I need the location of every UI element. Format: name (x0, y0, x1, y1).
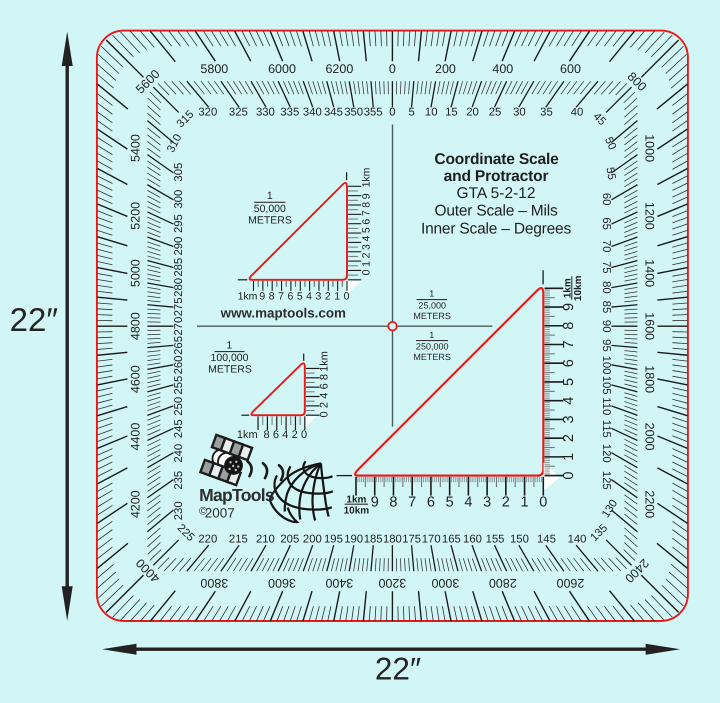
svg-text:100,000: 100,000 (211, 352, 249, 364)
svg-text:160: 160 (463, 534, 482, 546)
svg-text:205: 205 (280, 534, 299, 546)
svg-text:4400: 4400 (128, 423, 142, 451)
svg-text:155: 155 (486, 534, 505, 546)
svg-text:90: 90 (600, 320, 612, 333)
svg-text:7: 7 (360, 210, 372, 216)
svg-text:2800: 2800 (489, 576, 517, 590)
svg-text:5000: 5000 (128, 259, 142, 287)
svg-text:7: 7 (278, 290, 284, 302)
svg-text:95: 95 (600, 339, 612, 352)
svg-text:4: 4 (319, 393, 331, 399)
svg-text:1800: 1800 (642, 365, 656, 393)
svg-text:215: 215 (229, 534, 248, 546)
svg-text:150: 150 (510, 534, 529, 546)
svg-text:6: 6 (273, 429, 279, 441)
svg-text:3: 3 (483, 495, 491, 511)
svg-text:10: 10 (425, 107, 438, 119)
svg-text:245: 245 (173, 419, 185, 438)
svg-text:and Protractor: and Protractor (444, 168, 549, 185)
svg-text:260: 260 (173, 356, 185, 375)
svg-text:45: 45 (591, 111, 608, 128)
svg-text:3600: 3600 (268, 576, 296, 590)
svg-text:125: 125 (600, 471, 612, 490)
svg-text:4: 4 (282, 429, 288, 441)
svg-text:8: 8 (360, 202, 372, 208)
svg-text:60: 60 (600, 193, 612, 206)
svg-text:5400: 5400 (128, 134, 142, 162)
svg-text:9: 9 (371, 495, 379, 511)
svg-text:25: 25 (489, 107, 502, 119)
svg-text:1: 1 (267, 190, 273, 202)
svg-text:50: 50 (602, 135, 618, 151)
svg-text:6: 6 (427, 495, 435, 511)
svg-text:8: 8 (389, 495, 397, 511)
svg-text:335: 335 (280, 107, 299, 119)
svg-text:65: 65 (600, 217, 612, 230)
svg-text:3: 3 (561, 415, 577, 423)
svg-text:22″: 22″ (10, 301, 59, 338)
svg-text:190: 190 (344, 534, 363, 546)
svg-text:7: 7 (561, 340, 577, 348)
svg-text:1: 1 (429, 289, 434, 299)
svg-text:2: 2 (325, 290, 331, 302)
svg-text:275: 275 (173, 298, 185, 317)
svg-text:3: 3 (360, 244, 372, 250)
svg-text:220: 220 (198, 534, 217, 546)
svg-text:3400: 3400 (325, 576, 353, 590)
svg-text:175: 175 (402, 534, 421, 546)
svg-text:180: 180 (383, 534, 402, 546)
svg-text:1400: 1400 (642, 259, 656, 287)
svg-text:105: 105 (600, 376, 612, 395)
svg-text:305: 305 (173, 163, 185, 182)
svg-text:345: 345 (324, 107, 343, 119)
svg-text:280: 280 (173, 278, 185, 297)
svg-text:3: 3 (316, 290, 322, 302)
svg-text:600: 600 (560, 62, 581, 76)
svg-text:70: 70 (600, 240, 612, 253)
svg-text:110: 110 (600, 397, 612, 415)
svg-text:2200: 2200 (642, 490, 656, 518)
svg-text:265: 265 (173, 336, 185, 355)
svg-text:2: 2 (502, 495, 510, 511)
svg-text:2600: 2600 (557, 576, 585, 590)
svg-text:115: 115 (600, 420, 612, 438)
svg-text:235: 235 (173, 471, 185, 490)
svg-text:290: 290 (173, 237, 185, 256)
svg-text:1: 1 (334, 290, 340, 302)
svg-text:320: 320 (198, 107, 217, 119)
svg-text:9: 9 (360, 193, 372, 199)
svg-text:50,000: 50,000 (254, 203, 286, 215)
svg-text:350: 350 (344, 107, 363, 119)
svg-text:8: 8 (264, 429, 270, 441)
svg-text:0: 0 (319, 411, 331, 417)
svg-text:310: 310 (165, 132, 184, 154)
svg-text:250,000: 250,000 (416, 342, 449, 352)
svg-text:GTA 5-2-12: GTA 5-2-12 (457, 185, 536, 202)
svg-text:5200: 5200 (128, 202, 142, 230)
svg-text:1200: 1200 (642, 202, 656, 230)
svg-text:25,000: 25,000 (418, 301, 446, 311)
svg-text:270: 270 (173, 317, 185, 336)
svg-text:250: 250 (173, 397, 185, 416)
svg-text:1: 1 (561, 453, 577, 461)
svg-text:295: 295 (173, 214, 185, 233)
svg-text:1km: 1km (237, 429, 258, 441)
svg-text:1km: 1km (319, 351, 331, 372)
svg-text:1: 1 (521, 495, 529, 511)
svg-text:4: 4 (306, 290, 312, 302)
svg-text:300: 300 (173, 190, 185, 209)
svg-text:2000: 2000 (642, 423, 656, 451)
svg-text:2: 2 (319, 402, 331, 408)
svg-text:165: 165 (442, 534, 461, 546)
svg-text:0: 0 (561, 472, 577, 480)
svg-text:355: 355 (364, 107, 383, 119)
svg-text:8: 8 (269, 290, 275, 302)
svg-text:2: 2 (360, 252, 372, 258)
svg-text:8: 8 (319, 374, 331, 380)
svg-text:1000: 1000 (642, 134, 656, 162)
svg-text:325: 325 (229, 107, 248, 119)
svg-text:20: 20 (466, 107, 479, 119)
svg-text:6: 6 (360, 219, 372, 225)
svg-text:8: 8 (561, 322, 577, 330)
svg-text:5: 5 (446, 495, 454, 511)
svg-text:6: 6 (561, 359, 577, 367)
svg-text:1km: 1km (360, 167, 372, 187)
svg-text:0: 0 (389, 107, 395, 119)
svg-text:185: 185 (364, 534, 383, 546)
svg-text:0: 0 (539, 495, 547, 511)
svg-text:285: 285 (173, 258, 185, 277)
svg-text:3200: 3200 (378, 576, 406, 590)
svg-text:5: 5 (360, 227, 372, 233)
svg-text:210: 210 (256, 534, 275, 546)
svg-text:9: 9 (561, 303, 577, 311)
svg-text:METERS: METERS (413, 311, 451, 321)
svg-text:10km: 10km (573, 275, 584, 301)
svg-text:255: 255 (173, 376, 185, 395)
svg-text:5800: 5800 (200, 62, 228, 76)
svg-text:1: 1 (429, 330, 434, 340)
svg-text:30: 30 (513, 107, 526, 119)
svg-text:340: 340 (303, 107, 322, 119)
svg-text:85: 85 (600, 301, 612, 314)
svg-text:100: 100 (600, 356, 612, 375)
svg-text:40: 40 (571, 107, 584, 119)
svg-text:22″: 22″ (375, 650, 421, 686)
svg-text:4800: 4800 (128, 312, 142, 340)
svg-text:5: 5 (297, 290, 303, 302)
svg-text:55: 55 (603, 166, 617, 180)
svg-text:6: 6 (287, 290, 293, 302)
svg-text:5: 5 (561, 378, 577, 386)
svg-text:2: 2 (292, 429, 298, 441)
svg-text:4: 4 (464, 495, 472, 511)
svg-text:0: 0 (360, 269, 372, 275)
svg-text:METERS: METERS (413, 352, 451, 362)
svg-text:6200: 6200 (325, 62, 353, 76)
svg-text:120: 120 (600, 444, 612, 463)
svg-text:2: 2 (561, 434, 577, 442)
svg-text:1: 1 (226, 340, 232, 352)
svg-text:240: 240 (173, 444, 185, 463)
svg-text:1: 1 (360, 261, 372, 267)
svg-text:330: 330 (256, 107, 275, 119)
svg-text:Coordinate Scale: Coordinate Scale (434, 151, 559, 168)
svg-text:MapTools: MapTools (199, 485, 275, 505)
svg-text:200: 200 (303, 534, 322, 546)
svg-text:5: 5 (409, 107, 415, 119)
svg-text:15: 15 (445, 107, 458, 119)
svg-text:0: 0 (344, 290, 350, 302)
svg-text:6000: 6000 (268, 62, 296, 76)
svg-text:0: 0 (301, 429, 307, 441)
svg-text:130: 130 (600, 498, 620, 520)
svg-text:2007: 2007 (205, 506, 235, 521)
svg-text:6: 6 (319, 383, 331, 389)
svg-text:230: 230 (173, 501, 185, 520)
svg-text:195: 195 (324, 534, 343, 546)
svg-text:170: 170 (422, 534, 441, 546)
svg-text:140: 140 (568, 534, 587, 546)
svg-text:1km: 1km (238, 290, 258, 302)
svg-text:1600: 1600 (642, 312, 656, 340)
svg-text:3000: 3000 (431, 576, 459, 590)
svg-text:4600: 4600 (128, 365, 142, 393)
svg-text:75: 75 (600, 261, 612, 274)
svg-text:4: 4 (360, 236, 372, 242)
svg-text:35: 35 (540, 107, 553, 119)
svg-text:7: 7 (408, 495, 416, 511)
svg-text:4: 4 (561, 397, 577, 405)
svg-text:9: 9 (259, 290, 265, 302)
svg-text:145: 145 (537, 534, 556, 546)
svg-text:3800: 3800 (200, 576, 228, 590)
svg-text:METERS: METERS (208, 364, 252, 376)
svg-text:METERS: METERS (248, 214, 292, 226)
svg-text:4200: 4200 (128, 490, 142, 518)
svg-text:Inner Scale – Degrees: Inner Scale – Degrees (421, 221, 571, 238)
svg-text:0: 0 (389, 62, 396, 76)
svg-text:www.maptools.com: www.maptools.com (220, 306, 346, 321)
svg-text:400: 400 (492, 62, 513, 76)
svg-text:10km: 10km (344, 505, 370, 516)
svg-text:80: 80 (600, 281, 612, 294)
svg-text:Outer Scale – Mils: Outer Scale – Mils (434, 203, 557, 220)
svg-text:200: 200 (435, 62, 456, 76)
